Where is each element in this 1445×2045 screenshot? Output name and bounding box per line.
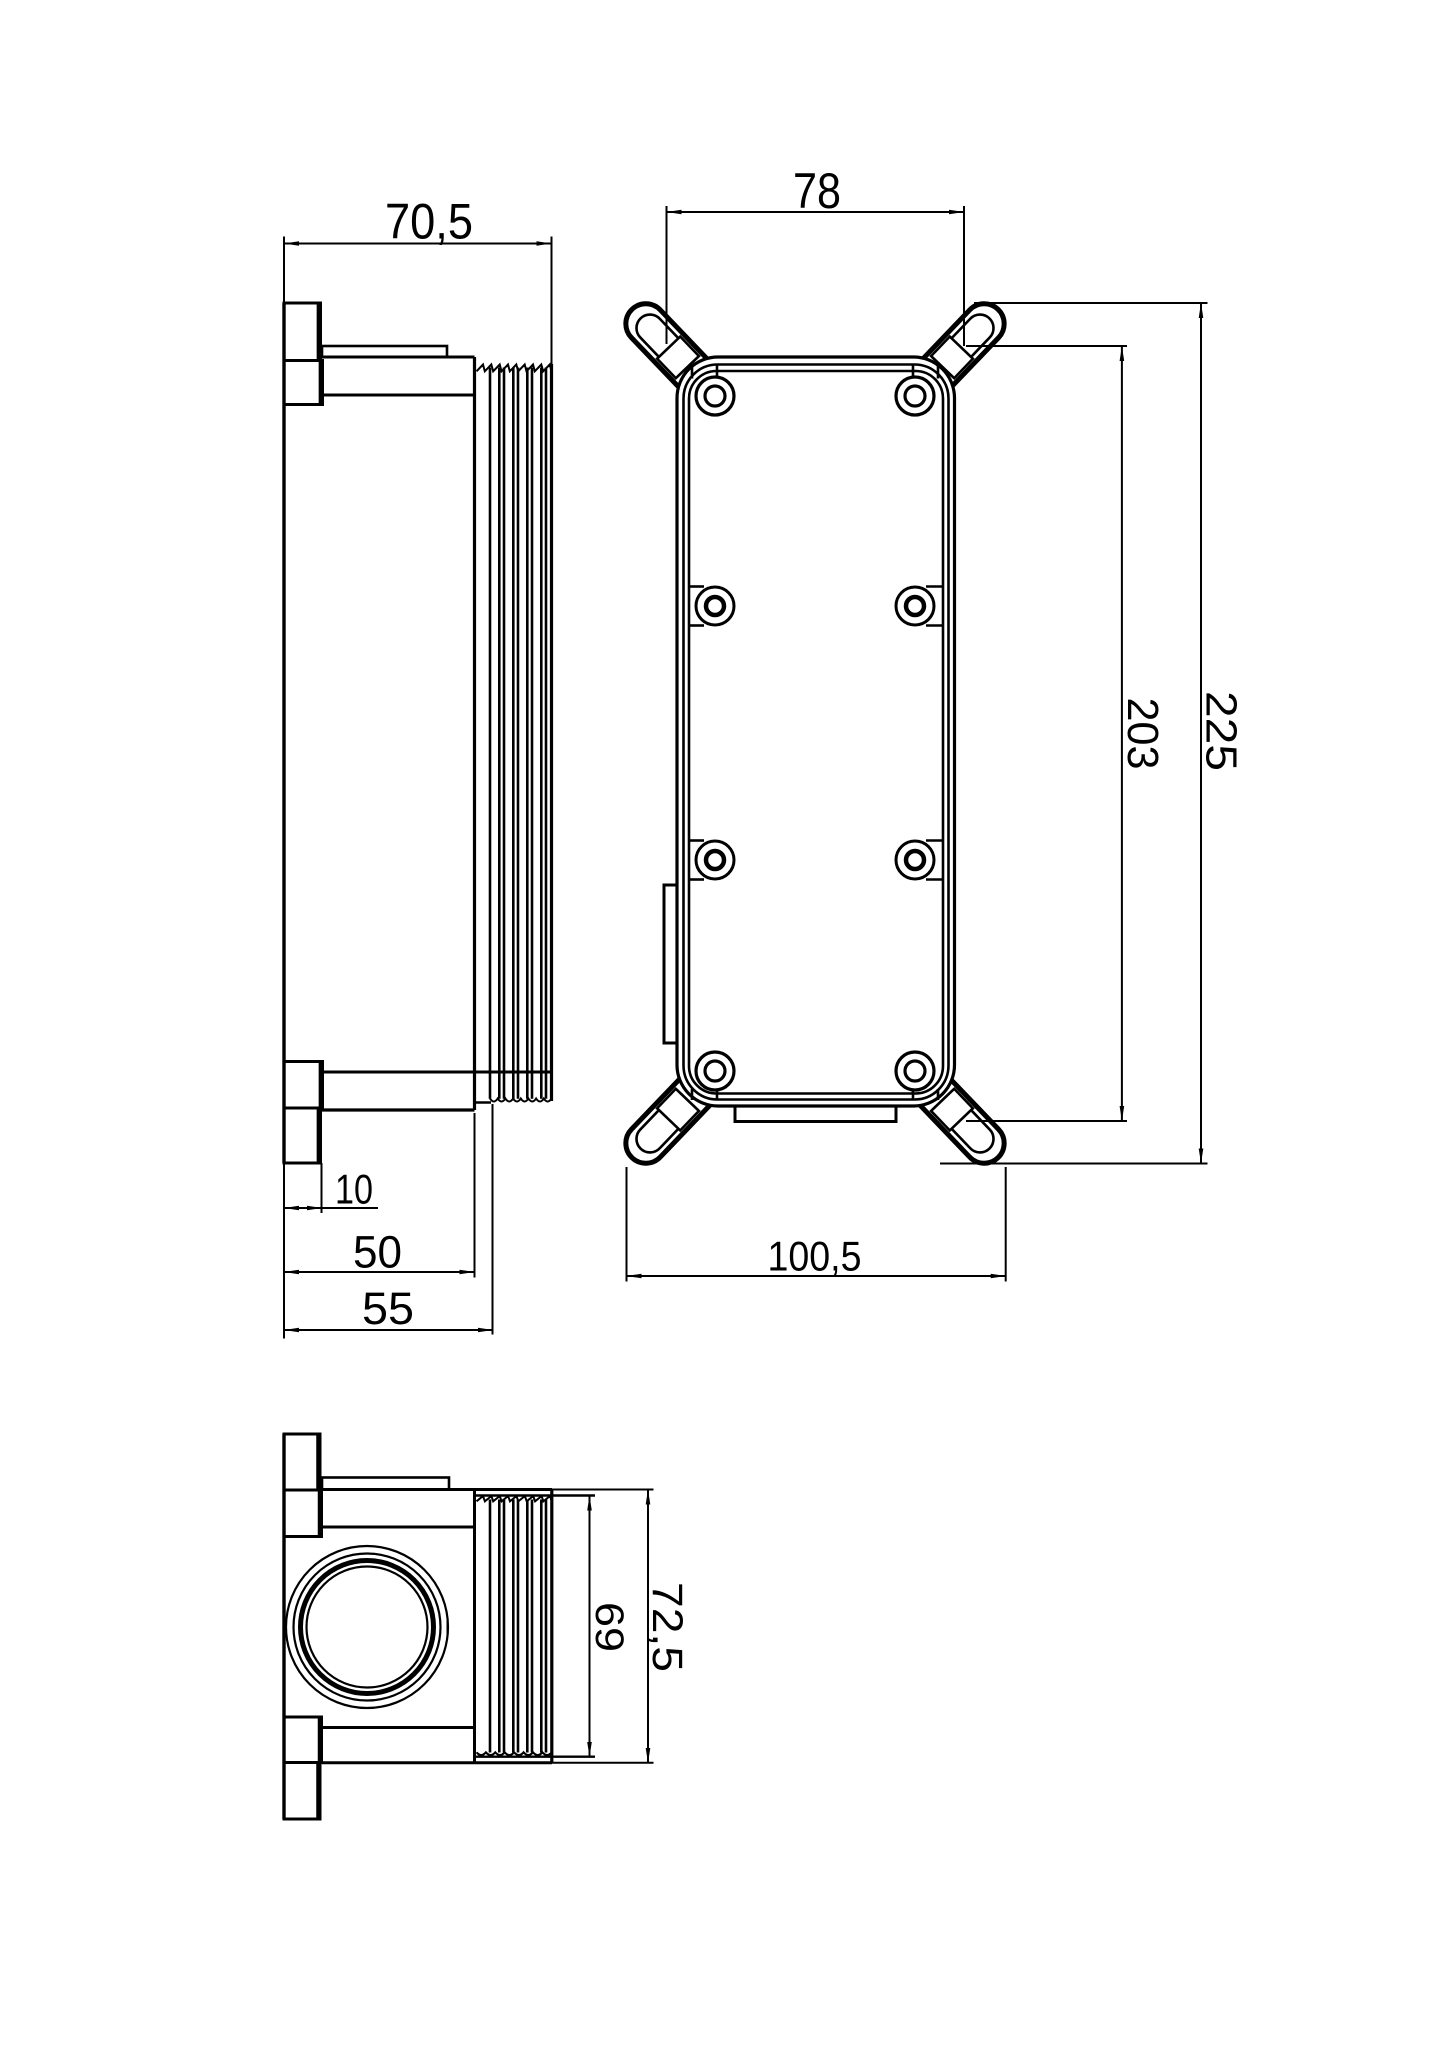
svg-text:70,5: 70,5: [385, 194, 473, 250]
svg-text:225: 225: [1197, 691, 1246, 771]
svg-text:55: 55: [362, 1283, 414, 1334]
svg-text:10: 10: [335, 1166, 373, 1213]
svg-text:203: 203: [1118, 698, 1167, 770]
svg-text:78: 78: [793, 163, 841, 219]
svg-text:50: 50: [353, 1227, 402, 1278]
svg-text:100,5: 100,5: [768, 1233, 862, 1280]
svg-text:69: 69: [587, 1602, 631, 1652]
svg-text:72,5: 72,5: [643, 1582, 691, 1672]
